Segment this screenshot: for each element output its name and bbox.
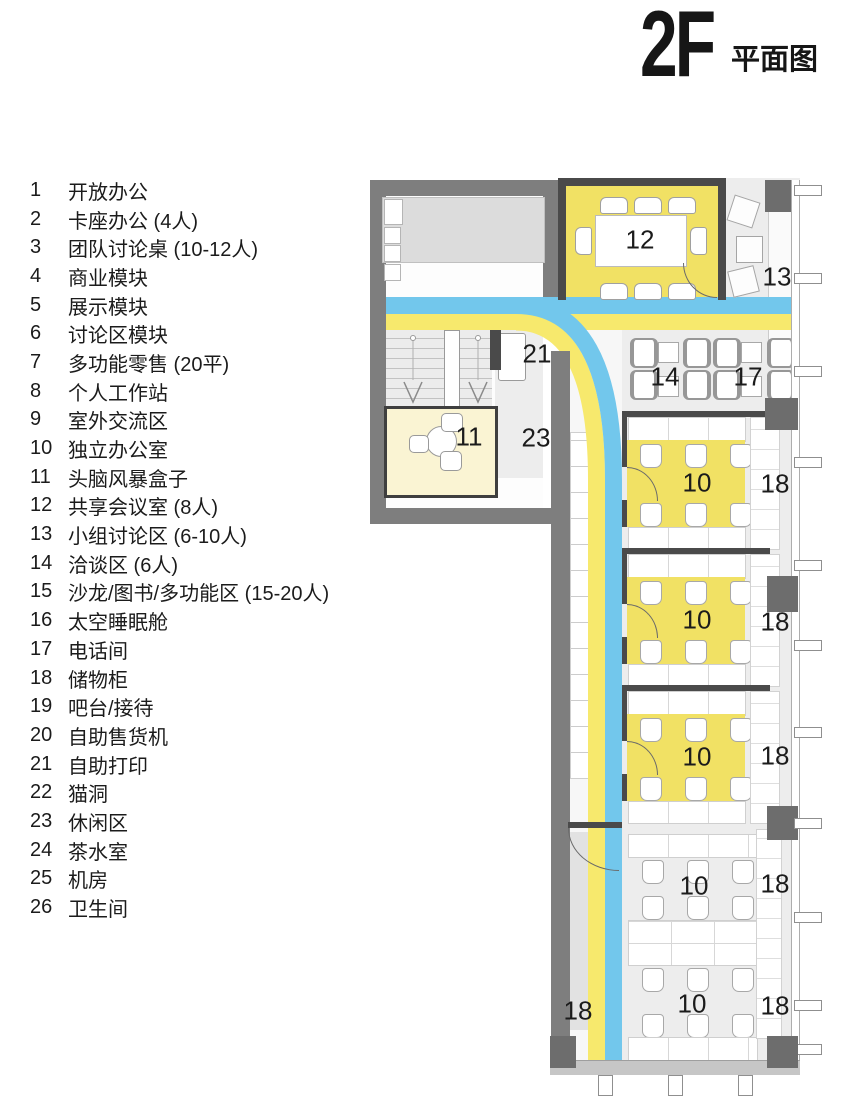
- wall: [370, 508, 570, 524]
- legend-item-number: 8: [30, 380, 68, 403]
- legend-item-label: 展示模块: [68, 291, 148, 320]
- legend-item: 5 展示模块: [30, 291, 329, 320]
- chair: [685, 444, 707, 468]
- chair: [730, 777, 752, 801]
- legend-item-number: 3: [30, 236, 68, 259]
- floor-plan: 12 13 14 17 21 23 11 10 18 10 18 10 18 1…: [370, 170, 842, 1095]
- legend-item-label: 电话间: [68, 635, 128, 664]
- legend-item: 19 吧台/接待: [30, 692, 329, 721]
- legend-item-number: 15: [30, 580, 68, 603]
- legend-item: 16 太空睡眠舱: [30, 606, 329, 635]
- side-table: [741, 342, 762, 363]
- room-label-13: 13: [763, 262, 792, 293]
- legend-item-number: 24: [30, 839, 68, 862]
- chair: [732, 896, 754, 920]
- chair: [690, 227, 707, 255]
- chair: [685, 718, 707, 742]
- room-label-18: 18: [761, 741, 790, 772]
- armchair: [683, 370, 711, 400]
- legend-item: 2 卡座办公 (4人): [30, 205, 329, 234]
- desk-row: [628, 664, 746, 687]
- room-label-21: 21: [523, 339, 552, 370]
- legend-item: 25 机房: [30, 865, 329, 894]
- legend-item: 10 独立办公室: [30, 434, 329, 463]
- chair: [642, 860, 664, 884]
- legend-item-label: 头脑风暴盒子: [68, 463, 188, 492]
- legend-item-label: 吧台/接待: [68, 692, 154, 721]
- legend-item: 20 自助售货机: [30, 721, 329, 750]
- chair: [600, 197, 628, 214]
- mullion: [794, 1000, 822, 1011]
- chair: [642, 1014, 664, 1038]
- mullion: [794, 366, 822, 377]
- legend-item-label: 太空睡眠舱: [68, 606, 168, 635]
- page-title-floor: 2F: [640, 0, 713, 98]
- legend-item-label: 个人工作站: [68, 377, 168, 406]
- mullion: [794, 640, 822, 651]
- legend-item: 12 共享会议室 (8人): [30, 492, 329, 521]
- legend-item-label: 商业模块: [68, 262, 148, 291]
- legend-item-number: 16: [30, 609, 68, 632]
- wall: [622, 774, 627, 801]
- shelf-strip: [570, 432, 590, 779]
- legend-item: 1 开放办公: [30, 176, 329, 205]
- chair: [575, 227, 592, 255]
- legend-item: 4 商业模块: [30, 262, 329, 291]
- legend-item-label: 小组讨论区 (6-10人): [68, 520, 247, 549]
- service-room: [382, 197, 545, 263]
- legend-item-label: 卡座办公 (4人): [68, 205, 198, 234]
- mullion: [794, 185, 822, 196]
- chair: [642, 896, 664, 920]
- room-label-10: 10: [683, 605, 712, 636]
- legend-item-number: 12: [30, 494, 68, 517]
- wall: [622, 691, 627, 741]
- chair: [634, 283, 662, 300]
- legend-item-label: 多功能零售 (20平): [68, 348, 229, 377]
- cushion: [736, 236, 763, 263]
- legend-item: 21 自助打印: [30, 750, 329, 779]
- wall: [622, 417, 627, 467]
- legend-item-number: 26: [30, 896, 68, 919]
- closet: [384, 245, 401, 262]
- room-label-11: 11: [456, 422, 483, 453]
- room-label-23: 23: [522, 423, 551, 454]
- wall: [490, 330, 501, 370]
- mullion: [794, 1044, 822, 1055]
- wall: [622, 500, 627, 527]
- legend-item: 14 洽谈区 (6人): [30, 549, 329, 578]
- legend-item-number: 14: [30, 552, 68, 575]
- chair: [634, 197, 662, 214]
- chair: [685, 777, 707, 801]
- closet: [384, 199, 403, 225]
- room-label-18: 18: [564, 996, 593, 1027]
- wall: [551, 351, 570, 1038]
- chair: [730, 718, 752, 742]
- room-label-18: 18: [761, 607, 790, 638]
- room-label-14: 14: [651, 362, 680, 393]
- chair: [642, 968, 664, 992]
- legend-item: 8 个人工作站: [30, 377, 329, 406]
- chair: [640, 777, 662, 801]
- chair: [730, 444, 752, 468]
- mullion: [794, 727, 822, 738]
- glass-wall: [791, 180, 800, 1075]
- room-label-17: 17: [734, 362, 763, 393]
- desk-cluster: [628, 920, 758, 966]
- chair: [440, 451, 462, 471]
- chair: [730, 503, 752, 527]
- chair: [685, 503, 707, 527]
- chair: [600, 283, 628, 300]
- legend-item-label: 团队讨论桌 (10-12人): [68, 233, 258, 262]
- legend-item: 6 讨论区模块: [30, 319, 329, 348]
- stair-arrow-icon: [404, 382, 422, 402]
- mullion: [794, 912, 822, 923]
- legend-item: 13 小组讨论区 (6-10人): [30, 520, 329, 549]
- legend-item-number: 18: [30, 667, 68, 690]
- legend-item-label: 共享会议室 (8人): [68, 491, 218, 520]
- legend-item-number: 5: [30, 294, 68, 317]
- room-label-18: 18: [761, 991, 790, 1022]
- legend-item-label: 讨论区模块: [68, 319, 168, 348]
- legend-item: 23 休闲区: [30, 807, 329, 836]
- mullion: [794, 457, 822, 468]
- chair: [730, 581, 752, 605]
- legend-item-number: 10: [30, 437, 68, 460]
- wall: [718, 186, 726, 300]
- legend-item-label: 独立办公室: [68, 434, 168, 463]
- legend-item-label: 洽谈区 (6人): [68, 549, 178, 578]
- desk-row: [628, 527, 746, 550]
- column-block: [550, 1036, 576, 1068]
- legend-item-label: 休闲区: [68, 807, 128, 836]
- bottom-wall: [550, 1060, 800, 1075]
- legend-item: 11 头脑风暴盒子: [30, 463, 329, 492]
- legend-item-number: 6: [30, 322, 68, 345]
- legend-item-number: 21: [30, 753, 68, 776]
- column-block: [765, 398, 798, 430]
- legend-item-number: 4: [30, 265, 68, 288]
- mullion: [598, 1075, 613, 1096]
- legend-item-number: 11: [30, 466, 68, 489]
- chair: [732, 968, 754, 992]
- legend-item-label: 机房: [68, 864, 108, 893]
- desk-row: [628, 417, 746, 442]
- legend-item-number: 25: [30, 867, 68, 890]
- legend-item-number: 2: [30, 208, 68, 231]
- legend-item-number: 13: [30, 523, 68, 546]
- legend-item: 18 储物柜: [30, 664, 329, 693]
- legend-item-label: 卫生间: [68, 893, 128, 922]
- mullion: [738, 1075, 753, 1096]
- chair: [640, 640, 662, 664]
- mullion: [794, 560, 822, 571]
- legend-item-number: 20: [30, 724, 68, 747]
- legend-item: 22 猫洞: [30, 778, 329, 807]
- chair: [732, 860, 754, 884]
- mullion: [794, 273, 822, 284]
- desk-row: [628, 834, 758, 858]
- legend: 1 开放办公 2 卡座办公 (4人) 3 团队讨论桌 (10-12人) 4 商业…: [30, 176, 329, 922]
- legend-item: 17 电话间: [30, 635, 329, 664]
- side-table: [658, 342, 679, 363]
- room-label-10: 10: [683, 742, 712, 773]
- chair: [685, 581, 707, 605]
- chair: [640, 718, 662, 742]
- mullion: [668, 1075, 683, 1096]
- legend-item: 3 团队讨论桌 (10-12人): [30, 233, 329, 262]
- chair: [640, 503, 662, 527]
- legend-item-label: 储物柜: [68, 664, 128, 693]
- closet: [384, 227, 401, 244]
- chair: [640, 581, 662, 605]
- room-label-10: 10: [683, 468, 712, 499]
- legend-item-number: 9: [30, 408, 68, 431]
- legend-item: 26 卫生间: [30, 893, 329, 922]
- desk-row: [628, 801, 746, 824]
- room-label-18: 18: [761, 869, 790, 900]
- chair: [732, 1014, 754, 1038]
- wall: [370, 180, 562, 196]
- legend-item-number: 7: [30, 351, 68, 374]
- wall: [558, 186, 566, 300]
- legend-item-label: 开放办公: [68, 176, 148, 205]
- closet: [384, 264, 401, 281]
- armchair: [683, 338, 711, 368]
- legend-item: 9 室外交流区: [30, 406, 329, 435]
- mullion: [794, 818, 822, 829]
- room-label-10: 10: [678, 989, 707, 1020]
- room-label-18: 18: [761, 469, 790, 500]
- legend-item-label: 室外交流区: [68, 405, 168, 434]
- legend-item-number: 19: [30, 695, 68, 718]
- legend-item-number: 17: [30, 638, 68, 661]
- page-title-suffix: 平面图: [731, 36, 818, 78]
- column-block: [767, 1036, 798, 1068]
- legend-item: 15 沙龙/图书/多功能区 (15-20人): [30, 578, 329, 607]
- legend-item-label: 茶水室: [68, 836, 128, 865]
- chair: [730, 640, 752, 664]
- room-label-10: 10: [680, 871, 709, 902]
- legend-item: 7 多功能零售 (20平): [30, 348, 329, 377]
- legend-item-number: 22: [30, 781, 68, 804]
- wall: [622, 554, 627, 604]
- stair-arrow-icon: [469, 382, 487, 402]
- room-label-12: 12: [626, 225, 655, 256]
- chair: [668, 197, 696, 214]
- legend-item-label: 自助售货机: [68, 721, 168, 750]
- legend-item-number: 1: [30, 179, 68, 202]
- chair: [685, 640, 707, 664]
- desk-row: [628, 691, 746, 716]
- legend-item-label: 猫洞: [68, 778, 108, 807]
- desk-row: [628, 554, 746, 579]
- chair: [409, 435, 429, 453]
- legend-item-label: 自助打印: [68, 750, 148, 779]
- chair: [640, 444, 662, 468]
- wall: [622, 637, 627, 664]
- legend-item-label: 沙龙/图书/多功能区 (15-20人): [68, 577, 329, 606]
- legend-item-number: 23: [30, 810, 68, 833]
- legend-item: 24 茶水室: [30, 836, 329, 865]
